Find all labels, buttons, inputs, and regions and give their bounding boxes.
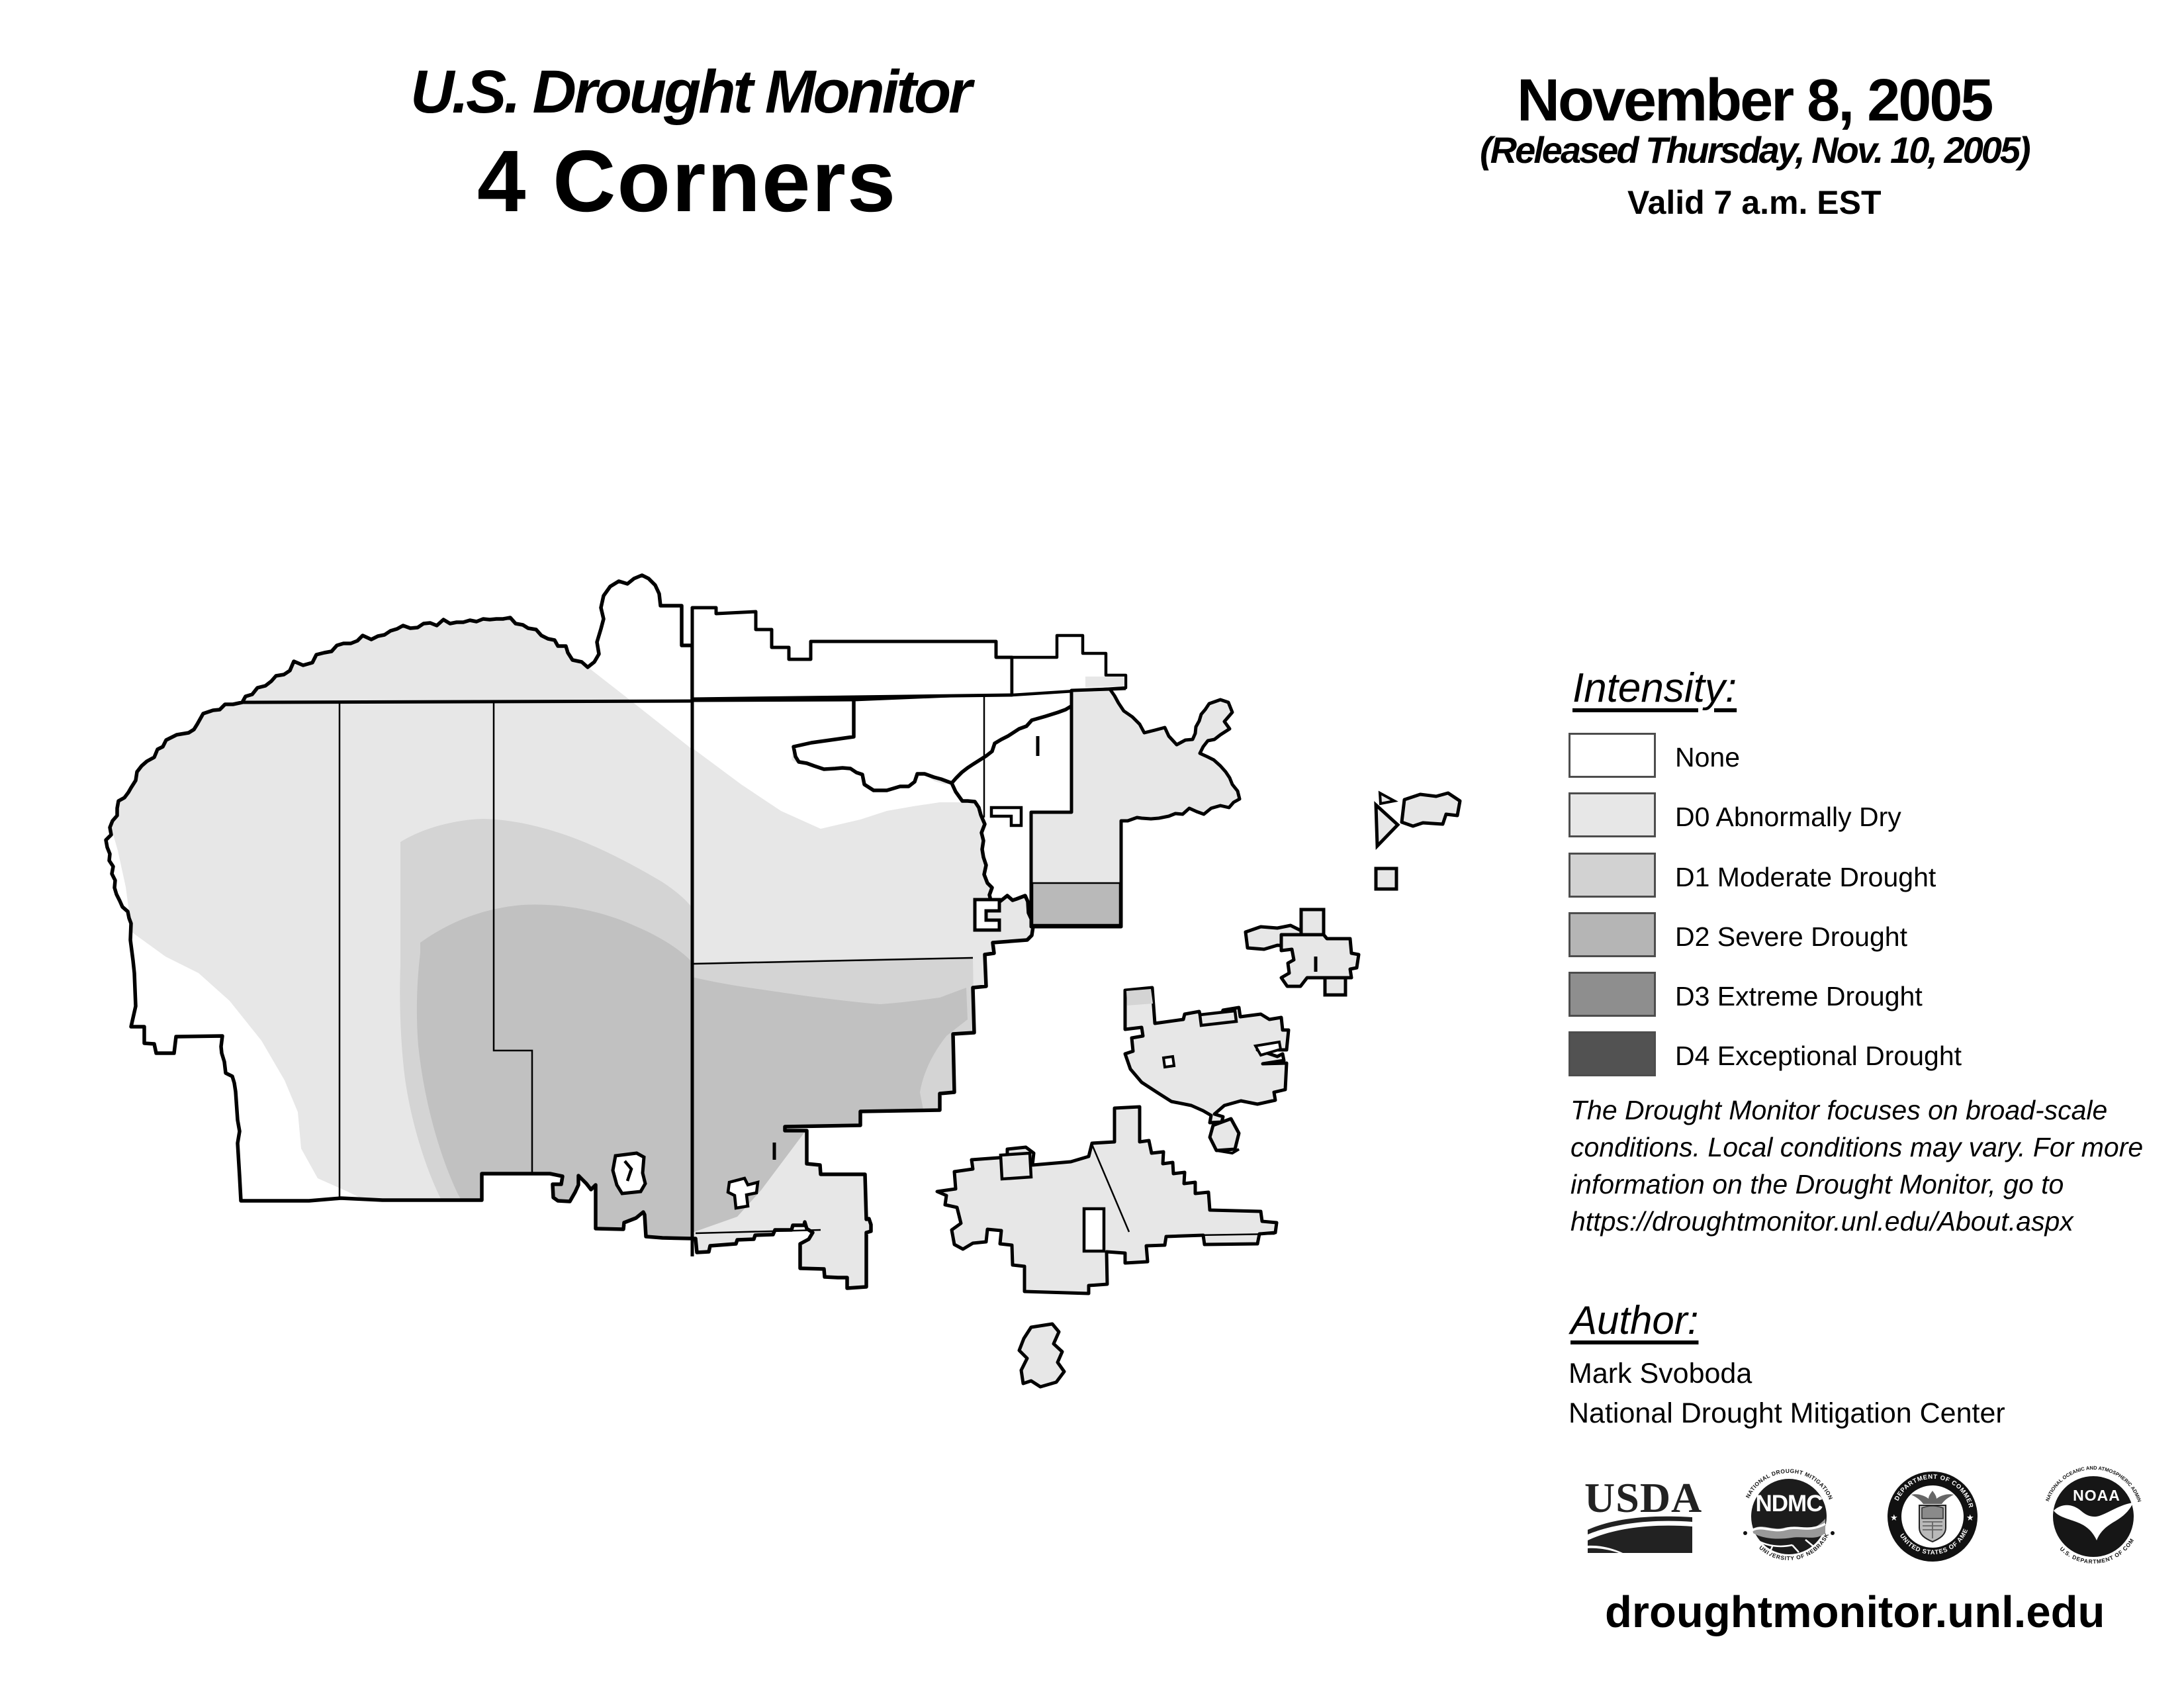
svg-text:NOAA: NOAA xyxy=(2073,1487,2120,1504)
svg-text:USDA: USDA xyxy=(1584,1474,1702,1521)
svg-text:NDMC: NDMC xyxy=(1756,1491,1823,1517)
svg-text:★: ★ xyxy=(1966,1513,1974,1523)
svg-text:★: ★ xyxy=(1890,1513,1898,1523)
